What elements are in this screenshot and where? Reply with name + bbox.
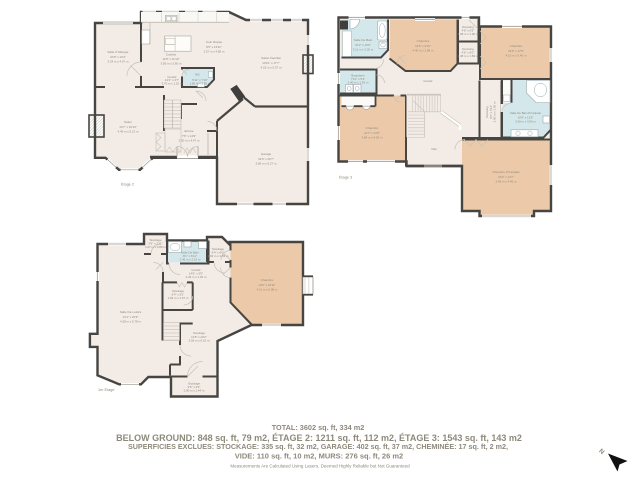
svg-text:14'7" x 16'10": 14'7" x 16'10" — [119, 125, 136, 129]
svg-text:Salle De Loisirs: Salle De Loisirs — [120, 310, 142, 314]
svg-text:2.57 m x 4.85 m: 2.57 m x 4.85 m — [204, 50, 225, 54]
svg-text:3.56 m x 3.60 m: 3.56 m x 3.60 m — [161, 62, 182, 66]
svg-text:1.38 m x 1.83 m: 1.38 m x 1.83 m — [458, 54, 479, 58]
svg-text:4.22 m x 5.37 m: 4.22 m x 5.37 m — [261, 66, 282, 70]
svg-text:Measurements Are Calculated Us: Measurements Are Calculated Using Lasers… — [230, 463, 410, 468]
svg-text:8'5" x 15'11": 8'5" x 15'11" — [206, 45, 222, 49]
svg-text:4.43 m x 1.04 m: 4.43 m x 1.04 m — [186, 275, 207, 279]
svg-text:13'6" x 19'11": 13'6" x 19'11" — [258, 283, 275, 287]
svg-text:3.84 m x 4.39 m: 3.84 m x 4.39 m — [362, 136, 383, 140]
svg-text:19'0" x 20'7": 19'0" x 20'7" — [258, 157, 274, 161]
svg-text:VIDE: 110 sq. ft, 10 m2, MURS:: VIDE: 110 sq. ft, 10 m2, MURS: 276 sq. f… — [235, 452, 403, 461]
svg-text:1.93 m x 1.57 m: 1.93 m x 1.57 m — [168, 296, 189, 300]
svg-text:SUPERFICIES EXCLUES: STOCKAGE:: SUPERFICIES EXCLUES: STOCKAGE: 335 sq. f… — [128, 442, 508, 451]
svg-text:1er Étage: 1er Étage — [98, 387, 114, 392]
svg-text:4.28 m x 6.78 m: 4.28 m x 6.78 m — [120, 319, 141, 323]
svg-text:Coin Repas: Coin Repas — [206, 40, 223, 44]
svg-text:2.30 m x 4.47 m: 2.30 m x 4.47 m — [179, 139, 200, 143]
svg-text:14'1" x 20'9": 14'1" x 20'9" — [123, 315, 139, 319]
svg-text:5.95 m x 4.45 m: 5.95 m x 4.45 m — [496, 180, 517, 184]
svg-text:3.28 m x 3.80 m: 3.28 m x 3.80 m — [515, 120, 536, 124]
svg-text:WC: WC — [195, 73, 200, 77]
svg-text:3.11 m x 3.20 m: 3.11 m x 3.20 m — [353, 48, 374, 52]
svg-text:1.07 m x 0.89 m: 1.07 m x 0.89 m — [145, 245, 166, 249]
svg-text:4.10 m x 5.40 m: 4.10 m x 5.40 m — [506, 54, 527, 58]
svg-text:Chambre Principale: Chambre Principale — [492, 170, 519, 174]
svg-text:Cuisine: Cuisine — [166, 53, 177, 57]
svg-text:Salon Familial: Salon Familial — [261, 56, 281, 60]
svg-text:19'6" x 14'7": 19'6" x 14'7" — [498, 175, 514, 179]
svg-text:13'10" x 17'7": 13'10" x 17'7" — [262, 61, 279, 65]
svg-text:Salle À Manger: Salle À Manger — [107, 50, 128, 54]
svg-text:Chambre: Chambre — [417, 39, 430, 43]
svg-text:Couloir: Couloir — [423, 79, 432, 83]
svg-text:5.80 m x 6.27 m: 5.80 m x 6.27 m — [256, 162, 277, 166]
svg-text:11'8" x 11'10": 11'8" x 11'10" — [162, 57, 179, 61]
svg-text:4.11 m x 6.08 m: 4.11 m x 6.08 m — [257, 288, 278, 292]
svg-text:Entrée: Entrée — [184, 129, 193, 133]
svg-text:10'2" x 10'6": 10'2" x 10'6" — [355, 43, 371, 47]
svg-text:Chambre: Chambre — [261, 278, 274, 282]
svg-text:Salle De Bain: Salle De Bain — [354, 38, 373, 42]
svg-text:7'6" x 14'9": 7'6" x 14'9" — [182, 134, 196, 138]
svg-text:3.56 m x 6.16 m: 3.56 m x 6.16 m — [189, 339, 210, 343]
svg-text:Salle De Bain Principale: Salle De Bain Principale — [510, 111, 541, 115]
svg-text:1.80 m x 2.39 m: 1.80 m x 2.39 m — [190, 82, 211, 86]
svg-text:4.40 m x 2.98 m: 4.40 m x 2.98 m — [413, 49, 434, 53]
svg-text:13'6" x 17'9": 13'6" x 17'9" — [508, 49, 524, 53]
svg-text:Chambre: Chambre — [510, 44, 523, 48]
svg-text:TOTAL: 3602 sq. ft, 334 m2: TOTAL: 3602 sq. ft, 334 m2 — [272, 423, 365, 432]
svg-text:2.90 m x 1.44 m: 2.90 m x 1.44 m — [184, 389, 205, 393]
svg-text:Étage 2: Étage 2 — [121, 182, 134, 187]
svg-text:2.46 m x 2.10 m: 2.46 m x 2.10 m — [180, 258, 201, 262]
svg-text:4.45 m x 5.13 m: 4.45 m x 5.13 m — [118, 130, 139, 134]
svg-text:Salon: Salon — [124, 120, 132, 124]
svg-text:Vide: Vide — [431, 147, 437, 151]
svg-text:Chambre: Chambre — [366, 126, 379, 130]
svg-text:Étage 3: Étage 3 — [339, 175, 352, 180]
svg-text:12'7" x 14'5": 12'7" x 14'5" — [364, 131, 380, 135]
svg-text:2.40 m x 1.63 m: 2.40 m x 1.63 m — [348, 81, 369, 85]
svg-text:3.70 m x 1.10 m: 3.70 m x 1.10 m — [162, 81, 183, 85]
svg-text:2.90 m x 1.50 m: 2.90 m x 1.50 m — [493, 101, 497, 122]
svg-text:14'6" x 9'10": 14'6" x 9'10" — [415, 44, 431, 48]
svg-text:1.92 m x 1.83 m: 1.92 m x 1.83 m — [208, 254, 229, 258]
svg-text:1.38 m x 1.96 m: 1.38 m x 1.96 m — [458, 32, 479, 36]
svg-text:Garage: Garage — [261, 152, 272, 156]
svg-text:10'8" x 13'4": 10'8" x 13'4" — [110, 55, 126, 59]
svg-text:3.24 m x 4.07 m: 3.24 m x 4.07 m — [108, 60, 129, 64]
